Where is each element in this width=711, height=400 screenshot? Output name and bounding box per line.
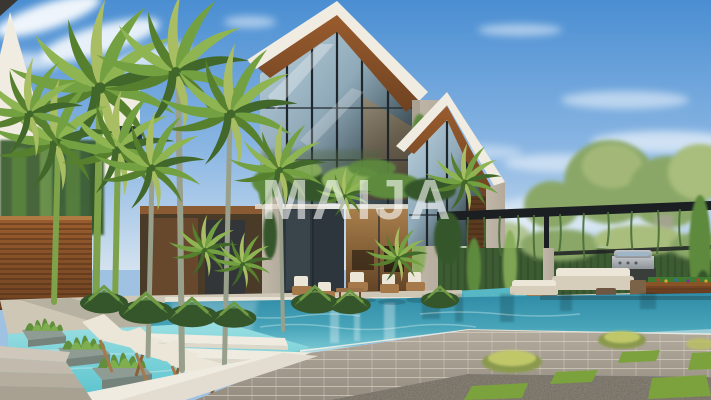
daybed — [510, 280, 558, 295]
wood-slat-wall — [0, 216, 92, 310]
villa-rendering: MAIJA — [0, 0, 711, 400]
scene-canvas — [0, 0, 711, 400]
